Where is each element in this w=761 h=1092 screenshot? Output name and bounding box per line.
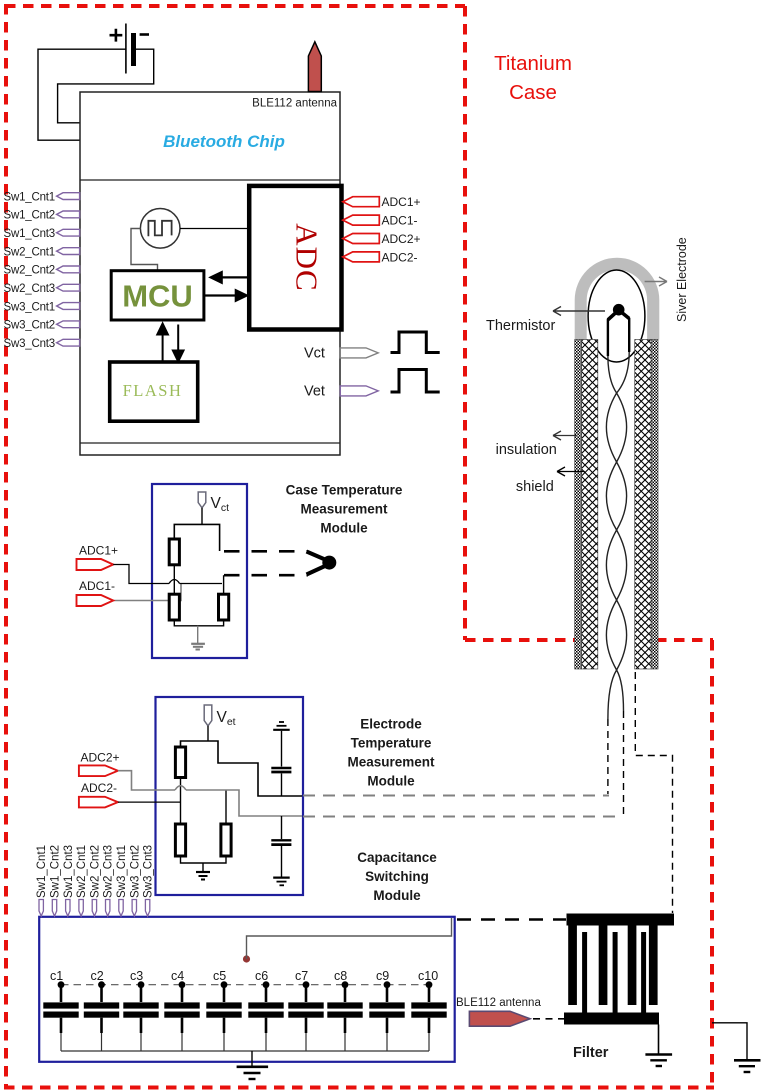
svg-text:ADC2+: ADC2+ xyxy=(382,232,421,246)
svg-text:Sw2_Cnt3: Sw2_Cnt3 xyxy=(103,845,115,898)
svg-text:Sw2_Cnt2: Sw2_Cnt2 xyxy=(89,845,101,898)
svg-text:ADC2-: ADC2- xyxy=(382,250,418,264)
svg-text:Sw3_Cnt1: Sw3_Cnt1 xyxy=(4,301,55,313)
svg-text:ADC2-: ADC2- xyxy=(81,781,117,795)
svg-text:Module: Module xyxy=(367,774,415,789)
svg-text:Sw2_Cnt1: Sw2_Cnt1 xyxy=(76,845,88,898)
svg-text:c3: c3 xyxy=(130,969,143,983)
svg-text:MCU: MCU xyxy=(122,279,193,314)
svg-text:Sw2_Cnt3: Sw2_Cnt3 xyxy=(4,283,55,295)
svg-text:Sw1_Cnt3: Sw1_Cnt3 xyxy=(63,845,75,898)
svg-text:ADC1-: ADC1- xyxy=(79,579,115,593)
svg-text:ADC2+: ADC2+ xyxy=(81,751,120,765)
svg-text:Sw1_Cnt2: Sw1_Cnt2 xyxy=(50,845,62,898)
svg-text:Module: Module xyxy=(373,888,421,903)
svg-text:Sw1_Cnt1: Sw1_Cnt1 xyxy=(36,845,48,898)
svg-text:Case Temperature: Case Temperature xyxy=(286,483,403,498)
svg-text:c5: c5 xyxy=(213,969,226,983)
svg-text:c4: c4 xyxy=(171,969,184,983)
svg-text:Sw2_Cnt2: Sw2_Cnt2 xyxy=(4,265,55,277)
svg-text:c8: c8 xyxy=(334,969,347,983)
svg-text:Vct: Vct xyxy=(211,495,230,514)
svg-text:BLE112 antenna: BLE112 antenna xyxy=(456,997,541,1009)
svg-text:Capacitance: Capacitance xyxy=(357,850,437,865)
svg-text:Sw2_Cnt1: Sw2_Cnt1 xyxy=(4,246,55,258)
svg-text:Vet: Vet xyxy=(304,384,325,400)
svg-text:Sw1_Cnt2: Sw1_Cnt2 xyxy=(4,210,55,222)
svg-text:shield: shield xyxy=(516,479,554,495)
svg-text:ADC1+: ADC1+ xyxy=(79,544,118,558)
svg-text:ADC: ADC xyxy=(290,223,325,291)
svg-text:Case: Case xyxy=(509,81,557,104)
svg-text:FLASH: FLASH xyxy=(123,381,183,400)
svg-text:c2: c2 xyxy=(91,969,104,983)
svg-text:c6: c6 xyxy=(255,969,268,983)
svg-text:Siver Electrode: Siver Electrode xyxy=(675,237,689,322)
svg-text:c1: c1 xyxy=(50,969,63,983)
svg-text:Module: Module xyxy=(320,521,368,536)
svg-text:Switching: Switching xyxy=(365,869,429,884)
svg-text:Sw3_Cnt2: Sw3_Cnt2 xyxy=(129,845,141,898)
svg-text:c9: c9 xyxy=(376,969,389,983)
svg-text:Vct: Vct xyxy=(304,346,325,362)
svg-text:BLE112 antenna: BLE112 antenna xyxy=(252,98,337,110)
svg-text:Measurement: Measurement xyxy=(300,502,388,517)
svg-text:c10: c10 xyxy=(418,969,438,983)
svg-text:ADC1-: ADC1- xyxy=(382,214,418,228)
svg-text:Thermistor: Thermistor xyxy=(486,318,555,334)
svg-text:Measurement: Measurement xyxy=(347,755,435,770)
svg-text:Sw1_Cnt1: Sw1_Cnt1 xyxy=(4,191,55,203)
svg-text:ADC1+: ADC1+ xyxy=(382,195,421,209)
svg-text:Filter: Filter xyxy=(573,1045,609,1061)
svg-text:insulation: insulation xyxy=(496,442,557,458)
svg-text:c7: c7 xyxy=(295,969,308,983)
svg-text:Bluetooth Chip: Bluetooth Chip xyxy=(163,132,285,151)
svg-text:Titanium: Titanium xyxy=(494,52,572,75)
svg-text:Sw3_Cnt3: Sw3_Cnt3 xyxy=(4,338,55,350)
svg-text:Electrode: Electrode xyxy=(360,717,422,732)
svg-text:Sw3_Cnt1: Sw3_Cnt1 xyxy=(116,845,128,898)
svg-text:Sw1_Cnt3: Sw1_Cnt3 xyxy=(4,228,55,240)
svg-text:Temperature: Temperature xyxy=(351,736,432,751)
svg-text:Sw3_Cnt2: Sw3_Cnt2 xyxy=(4,320,55,332)
svg-text:Sw3_Cnt3: Sw3_Cnt3 xyxy=(143,845,155,898)
svg-text:Vet: Vet xyxy=(217,709,236,728)
